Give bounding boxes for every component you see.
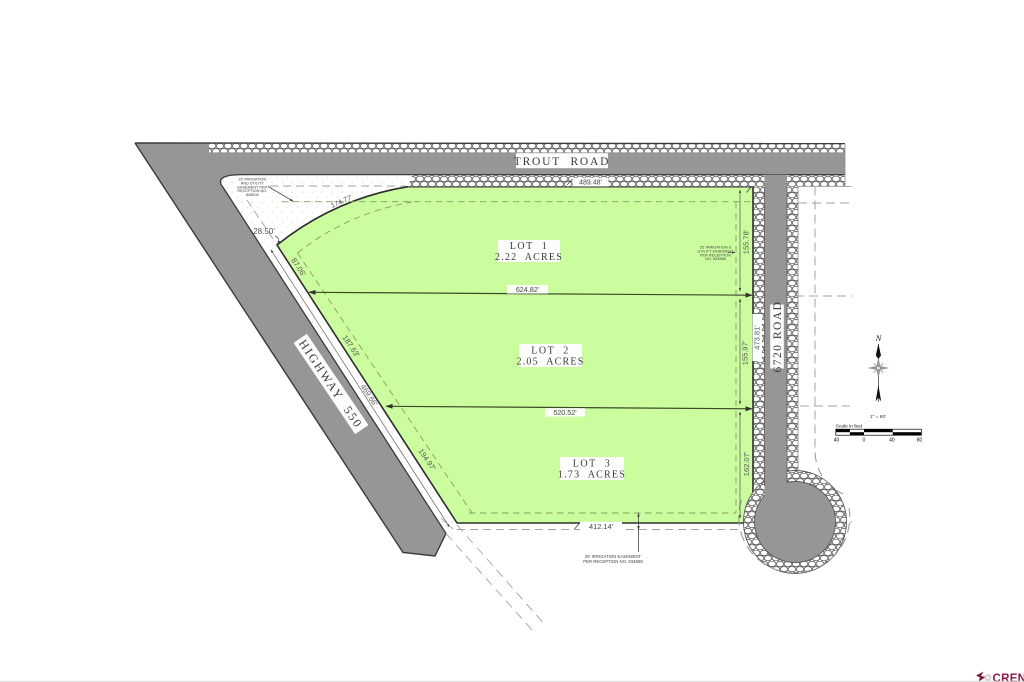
svg-text:489.48': 489.48' xyxy=(579,180,602,187)
svg-text:40: 40 xyxy=(834,438,840,444)
svg-text:6720 ROAD: 6720 ROAD xyxy=(772,301,784,373)
svg-text:NO. 834888: NO. 834888 xyxy=(705,257,725,261)
svg-text:473.81': 473.81' xyxy=(753,325,762,350)
svg-text:412.14': 412.14' xyxy=(589,522,614,531)
svg-text:28.50': 28.50' xyxy=(253,227,275,236)
svg-text:PER RECEPTION NO. 834888: PER RECEPTION NO. 834888 xyxy=(583,559,643,564)
svg-text:40: 40 xyxy=(889,438,895,444)
svg-text:LOT 1: LOT 1 xyxy=(510,241,548,252)
svg-text:1" = 60': 1" = 60' xyxy=(870,414,886,420)
svg-text:155.78': 155.78' xyxy=(742,229,751,254)
svg-text:80: 80 xyxy=(917,438,923,444)
svg-text:Scale in feet: Scale in feet xyxy=(836,423,863,429)
svg-text:CREN: CREN xyxy=(993,673,1024,682)
svg-text:LOT 3: LOT 3 xyxy=(573,459,611,470)
svg-text:808508: 808508 xyxy=(246,193,259,197)
svg-text:155.97': 155.97' xyxy=(741,340,750,365)
svg-text:2.22 ACRES: 2.22 ACRES xyxy=(495,252,563,263)
svg-text:162.07': 162.07' xyxy=(742,451,751,476)
svg-text:1.73 ACRES: 1.73 ACRES xyxy=(558,470,626,481)
svg-text:624.82': 624.82' xyxy=(516,285,540,294)
svg-text:520.52': 520.52' xyxy=(553,408,577,417)
svg-text:LOT 2: LOT 2 xyxy=(531,346,569,357)
svg-text:2.05 ACRES: 2.05 ACRES xyxy=(517,357,585,368)
svg-text:0: 0 xyxy=(863,438,866,444)
svg-text:TROUT ROAD: TROUT ROAD xyxy=(514,156,610,168)
